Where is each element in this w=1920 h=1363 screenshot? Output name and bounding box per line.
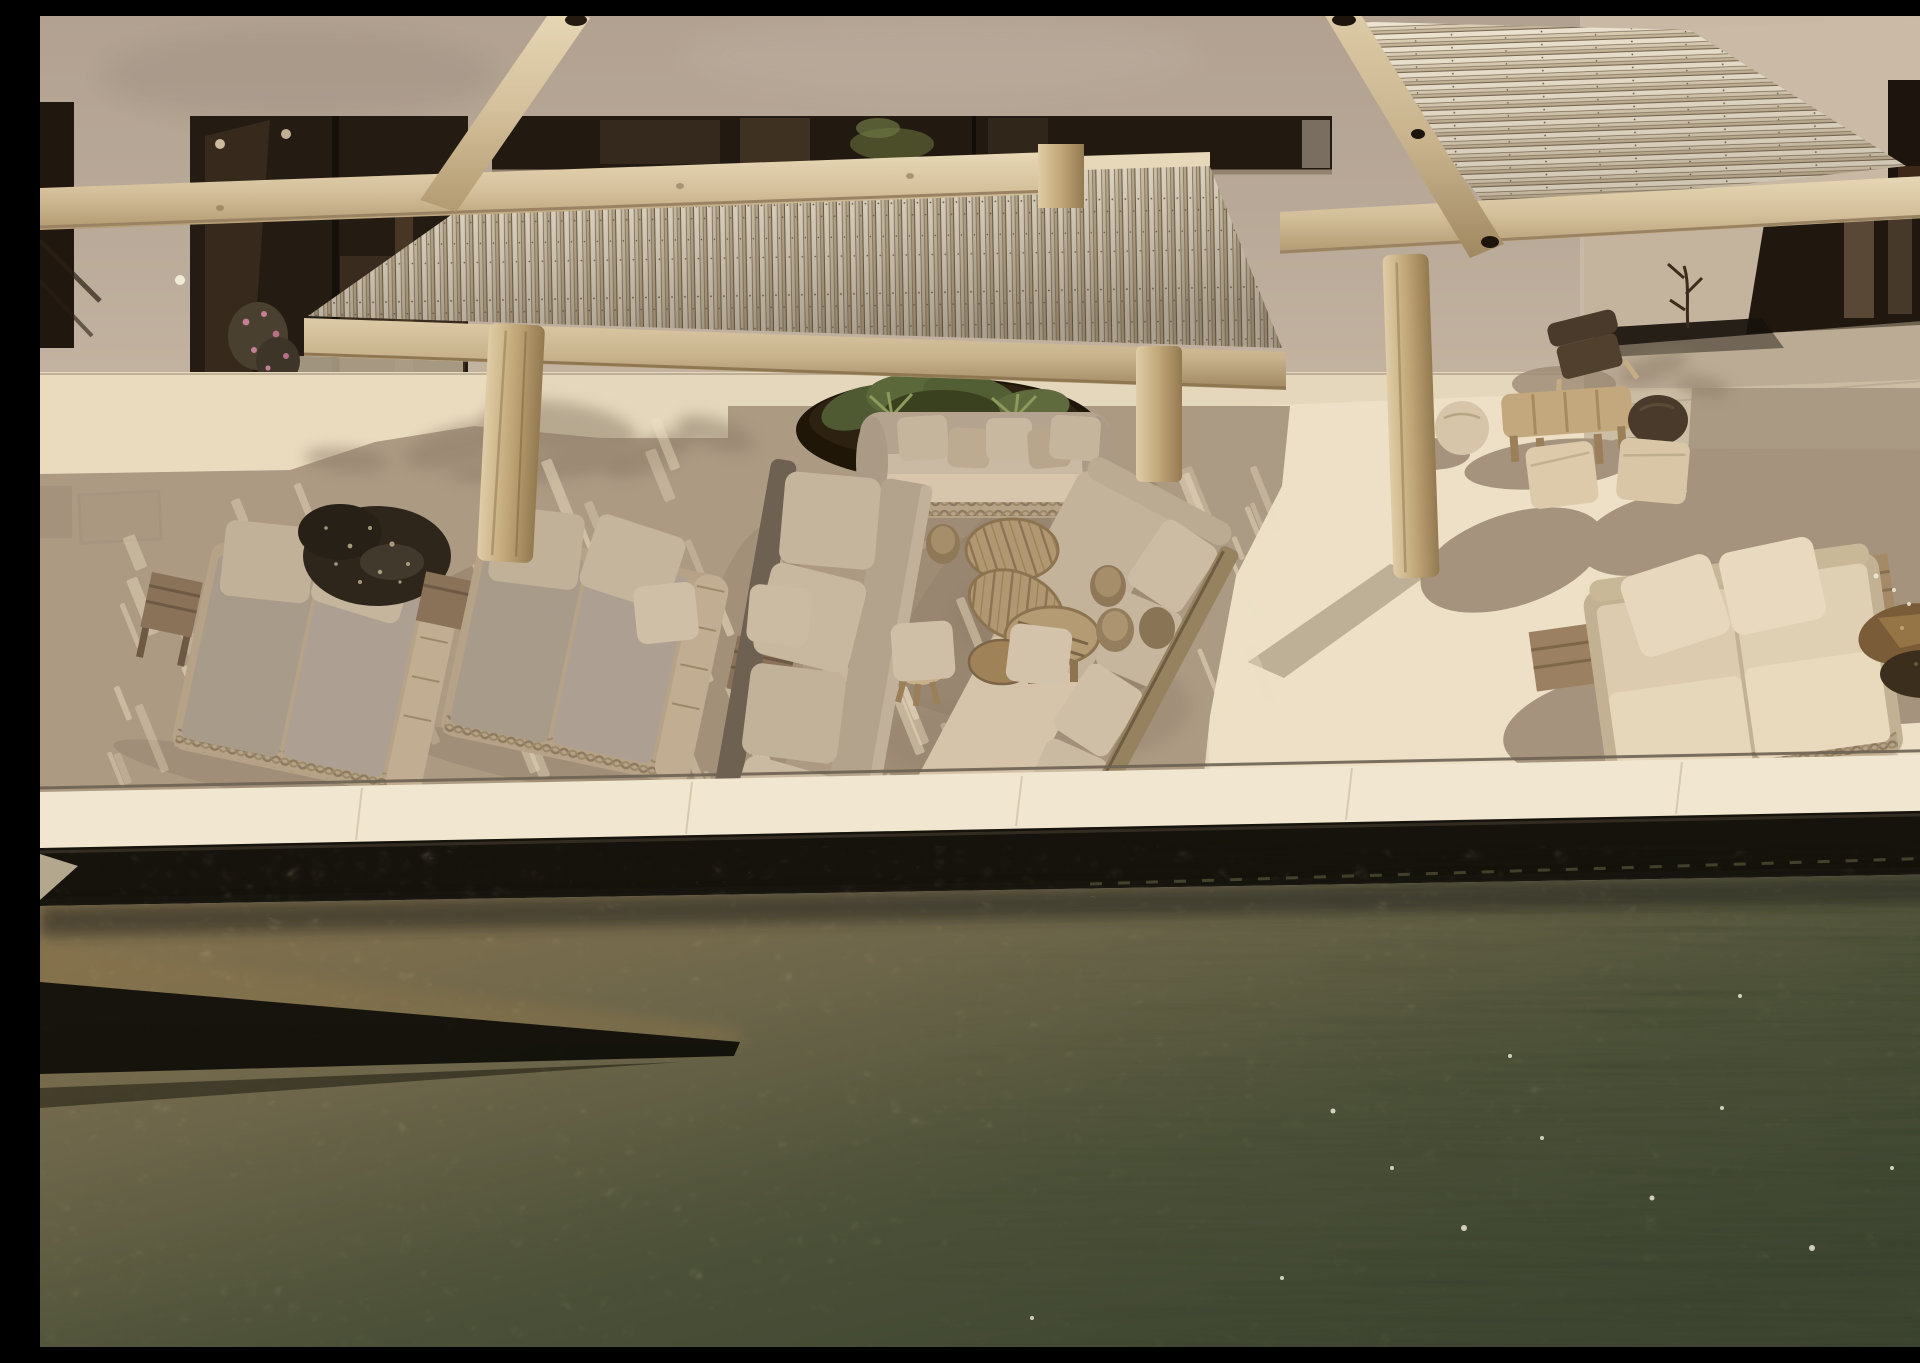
curtain xyxy=(1888,214,1912,314)
sun-glint xyxy=(1030,1316,1034,1320)
sun-glint xyxy=(1874,574,1879,579)
sun-glint xyxy=(1907,602,1911,606)
beam-connector xyxy=(1038,144,1084,208)
wall-sconce xyxy=(175,275,185,285)
sun-glint xyxy=(1390,1166,1394,1170)
sun-glint xyxy=(1892,588,1896,592)
junction-post xyxy=(1136,346,1182,482)
cube-pouf xyxy=(1524,440,1599,510)
cube-pouf xyxy=(1615,437,1690,505)
glass-reflection xyxy=(740,118,810,164)
wall-mottle xyxy=(100,30,500,122)
glass-highlight xyxy=(281,129,291,139)
wall-mottle xyxy=(680,16,1200,96)
log-stool xyxy=(1139,607,1175,649)
round-pouf xyxy=(1435,401,1489,455)
square-pouf xyxy=(632,581,700,645)
sun-glint xyxy=(1809,1245,1815,1251)
sun-glint xyxy=(1540,1136,1544,1140)
sun-glint xyxy=(1508,1054,1512,1058)
pillow xyxy=(741,662,847,765)
curtain-edge xyxy=(1302,120,1330,168)
sun-glint xyxy=(1890,1166,1894,1170)
dark-round-pouf xyxy=(1628,395,1688,445)
square-pouf xyxy=(746,583,813,646)
pool xyxy=(40,750,1920,1347)
sun-glint xyxy=(1738,994,1742,998)
sun-glint xyxy=(1720,1106,1724,1110)
pillow xyxy=(778,471,882,571)
sun-glint xyxy=(1461,1225,1467,1231)
glass-reflection xyxy=(600,120,720,164)
curtain xyxy=(1844,216,1874,318)
sun-glint xyxy=(1280,1276,1284,1280)
sun-glint xyxy=(1650,1196,1655,1201)
square-pouf xyxy=(890,620,956,682)
square-pouf xyxy=(1005,622,1074,687)
sun-glint xyxy=(1331,1109,1336,1114)
ripple-streaks xyxy=(840,846,1920,1347)
photo-canvas xyxy=(40,16,1920,1347)
villa-terrace-photo xyxy=(40,16,1920,1347)
olive-plant-in-window xyxy=(856,118,900,138)
glass-highlight xyxy=(215,139,225,149)
